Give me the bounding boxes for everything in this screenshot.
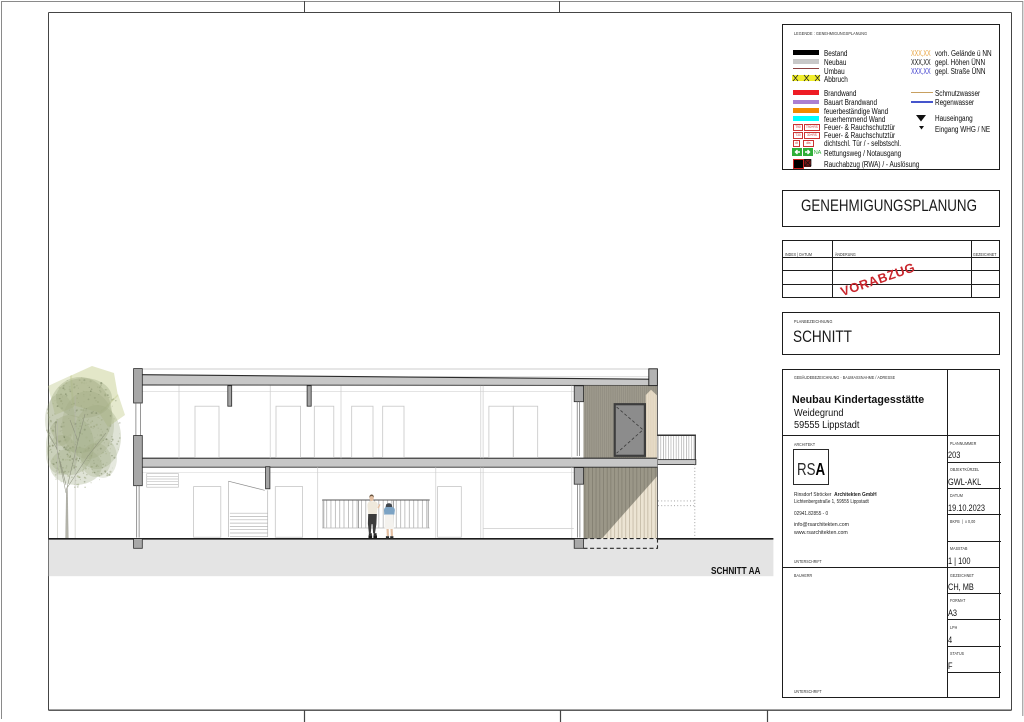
svg-text:SCHNITT AA: SCHNITT AA: [711, 565, 761, 577]
